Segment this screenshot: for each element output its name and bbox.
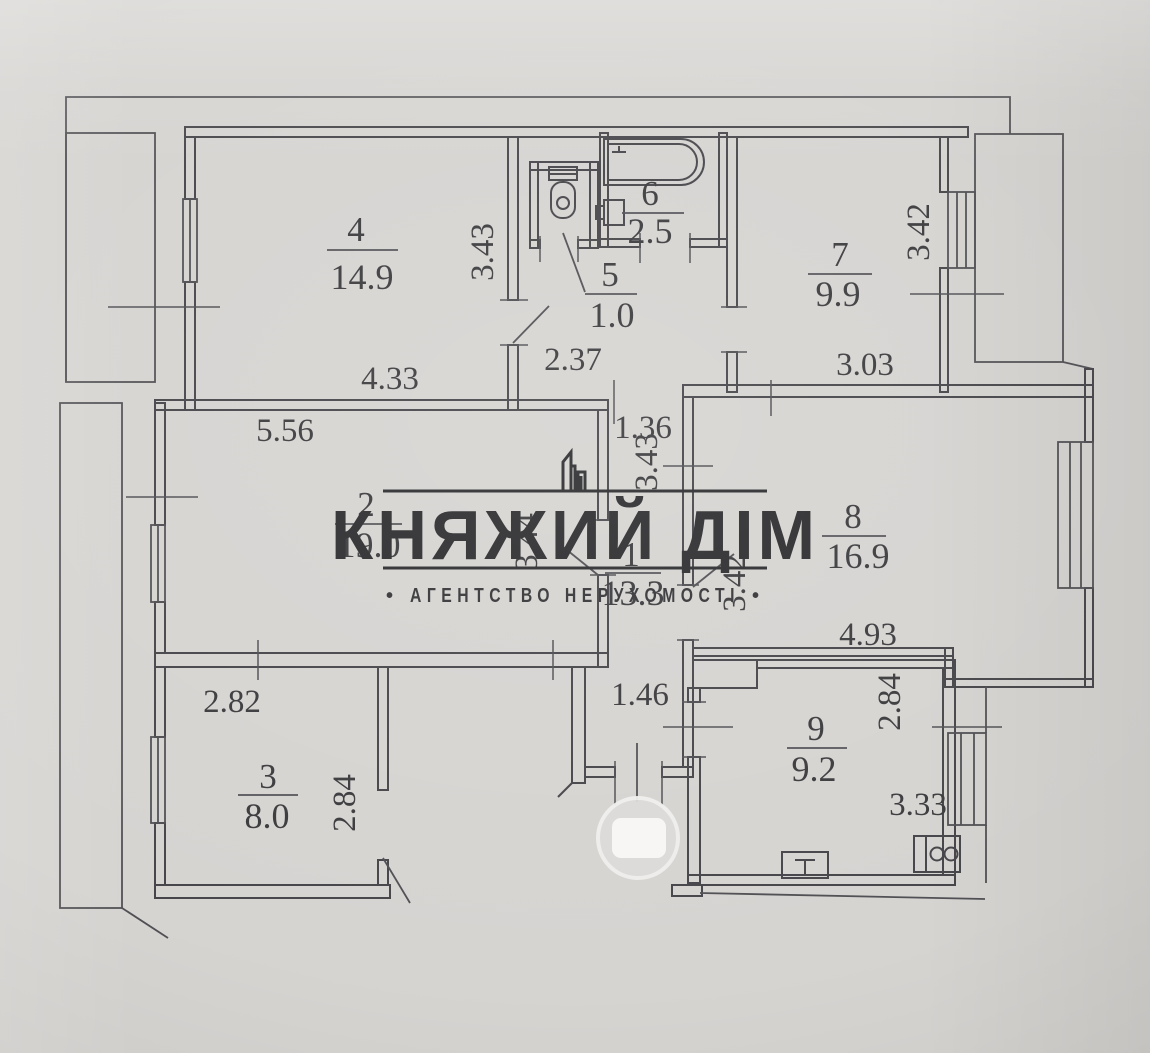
room-7-label: 7 9.9: [808, 235, 872, 314]
dim-room4-height: 3.43: [465, 223, 501, 281]
watermark-brand-text: КНЯЖИЙ ДІМ: [331, 495, 819, 574]
watermark-tagline-text: АГЕНТСТВО НЕРУХОМОСТІ: [410, 585, 740, 607]
window-room2-icon: [151, 525, 165, 602]
window-room7-icon: [948, 192, 975, 268]
room-9-area: 9.2: [792, 749, 837, 789]
dim-room4-width: 4.33: [361, 361, 419, 397]
room-6-number: 6: [641, 174, 659, 213]
loggia-top-left: [66, 133, 155, 382]
scanned-floor-plan-page: 4 14.9 6 2.5 5 1.0 7 9.9 2 19.0 1 1: [0, 0, 1150, 1053]
room-6-area: 2.5: [628, 211, 673, 251]
dim-room9-height: 2.84: [872, 673, 908, 731]
dim-room7-width: 3.03: [836, 347, 894, 383]
watermark-bullet-right: •: [752, 585, 766, 607]
dim-room3-width: 2.82: [203, 684, 261, 720]
dim-room3-height: 2.84: [327, 774, 363, 832]
dim-hall-lower-width: 1.46: [611, 677, 669, 713]
dim-room2-width: 5.56: [256, 413, 314, 449]
dim-corridor-height: 3.43: [629, 433, 665, 491]
room-5-label: 5 1.0: [563, 233, 637, 335]
room-5-leader-line: [563, 233, 585, 292]
door-leaf-room4: [513, 306, 549, 343]
room-4-label: 4 14.9: [327, 210, 398, 297]
room-9-number: 9: [807, 709, 825, 748]
floor-plan-drawing: 4 14.9 6 2.5 5 1.0 7 9.9 2 19.0 1 1: [0, 0, 1150, 1053]
window-room8-icon: [1058, 442, 1093, 588]
dim-room9-width: 3.33: [889, 787, 947, 823]
kitchen-shaft: [693, 660, 757, 688]
dim-room8-width: 4.93: [839, 617, 897, 653]
window-room9-icon: [948, 733, 986, 825]
balcony-top-right: [975, 134, 1063, 362]
room-3-label: 3 8.0: [238, 757, 298, 836]
room-8-number: 8: [844, 497, 862, 536]
room-7-number: 7: [831, 235, 849, 274]
window-room3-icon: [151, 737, 165, 823]
dim-hall-width: 2.37: [544, 342, 602, 378]
building-logo-icon: [563, 452, 585, 490]
stove-icon: [914, 836, 960, 872]
room-4-area: 14.9: [331, 257, 394, 297]
circle-sticker-watermark: [598, 798, 678, 878]
toilet-icon: [549, 167, 577, 218]
watermark-bullet-left: •: [386, 585, 400, 607]
room-8-label: 8 16.9: [822, 497, 890, 576]
room-5-area: 1.0: [590, 295, 635, 335]
dim-room7-height: 3.42: [901, 203, 937, 261]
room-4-number: 4: [347, 210, 365, 249]
room-7-area: 9.9: [816, 274, 861, 314]
room-8-area: 16.9: [827, 536, 890, 576]
loggia-left: [60, 403, 122, 908]
room-3-area: 8.0: [245, 796, 290, 836]
room-9-label: 9 9.2: [787, 709, 847, 789]
room-3-number: 3: [259, 757, 277, 796]
window-room4-icon: [183, 199, 197, 282]
room-5-number: 5: [601, 255, 619, 294]
